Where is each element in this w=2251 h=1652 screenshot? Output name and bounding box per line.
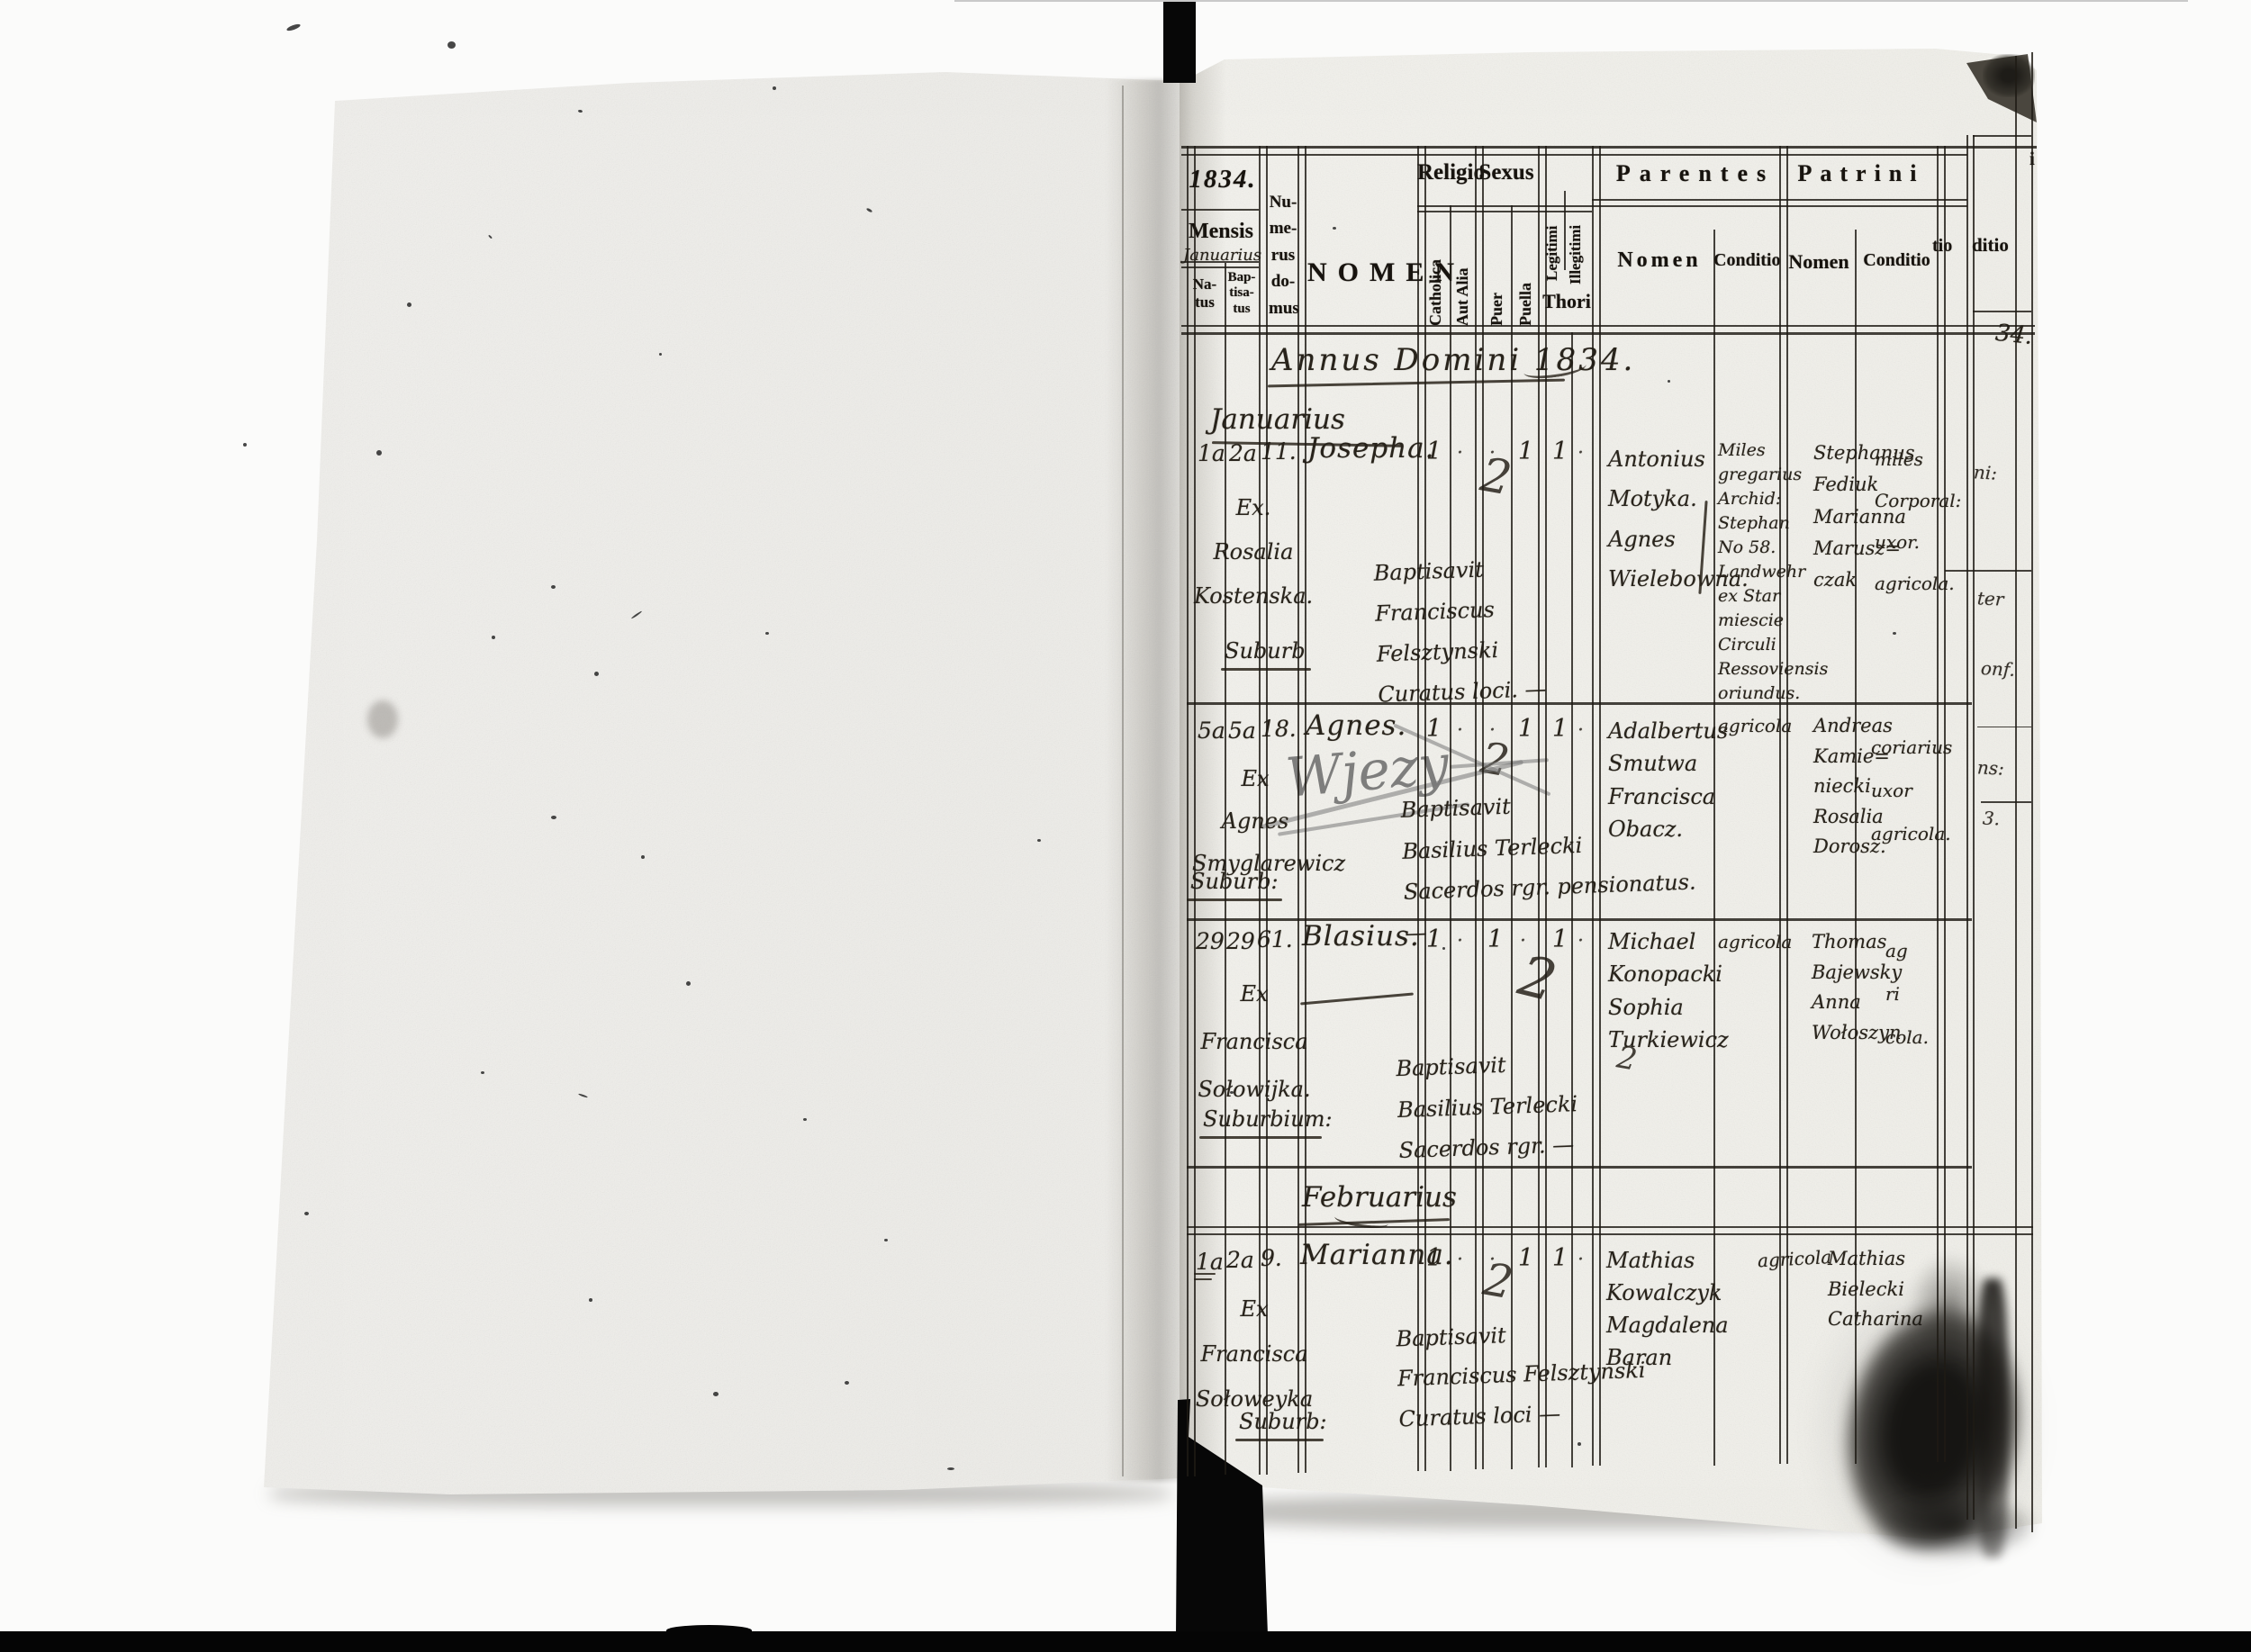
paper-speck xyxy=(447,41,456,49)
table-rule-horizontal xyxy=(1181,266,1259,268)
paper-speck xyxy=(1893,632,1896,635)
scan-bottom-bump xyxy=(666,1625,752,1636)
table-rule-vertical xyxy=(1779,146,1781,1464)
paper-speck xyxy=(492,636,495,639)
paper-speck xyxy=(884,1239,888,1241)
table-rule-horizontal xyxy=(1187,1166,1972,1169)
table-rule-horizontal xyxy=(1977,727,2031,727)
table-rule-vertical xyxy=(1259,146,1261,1475)
paper-speck xyxy=(1442,947,1445,950)
table-rule-horizontal xyxy=(1181,332,2035,335)
table-rule-vertical xyxy=(1973,135,1975,1520)
table-rule-horizontal xyxy=(1417,211,1592,212)
paper-speck xyxy=(947,1467,954,1470)
table-rule-horizontal xyxy=(1187,702,1972,705)
table-rule-vertical xyxy=(1297,146,1299,1473)
table-rule-vertical xyxy=(1599,146,1601,1466)
table-rule-horizontal xyxy=(1181,261,1259,263)
paper-speck xyxy=(1578,1442,1581,1446)
table-rule-vertical xyxy=(1855,230,1857,1464)
paper-speck xyxy=(713,1392,719,1396)
paper-speck xyxy=(1037,839,1041,842)
table-rule-vertical xyxy=(1305,146,1306,1473)
table-rule-horizontal xyxy=(1187,1226,2033,1228)
paper-speck xyxy=(773,86,776,90)
paper-speck xyxy=(1668,380,1670,383)
paper-speck xyxy=(1333,227,1336,230)
paper-speck xyxy=(589,1298,592,1302)
table-rule-vertical xyxy=(1194,146,1196,1476)
table-rule-horizontal xyxy=(1181,325,2035,327)
table-rule-vertical xyxy=(1266,146,1268,1475)
paper-speck xyxy=(376,450,382,456)
table-rule-horizontal xyxy=(1181,154,1967,156)
table-rule-vertical xyxy=(1475,146,1477,1469)
table-rule-vertical xyxy=(1937,146,1939,1462)
table-rule-vertical xyxy=(1571,332,1573,1467)
scan-top-line xyxy=(954,0,2188,2)
table-rule-vertical xyxy=(1966,135,1968,1520)
paper-speck xyxy=(1230,1091,1234,1094)
table-rule-vertical xyxy=(1225,263,1226,1475)
paper-speck xyxy=(765,632,769,635)
paper-speck xyxy=(551,585,556,589)
paper-speck xyxy=(243,443,247,447)
table-rule-horizontal xyxy=(1181,209,1259,211)
table-rule-vertical xyxy=(1564,191,1566,270)
table-rule-vertical xyxy=(1450,205,1451,1471)
paper-speck xyxy=(407,302,411,307)
table-rule-horizontal xyxy=(1973,135,2031,137)
paper-speck xyxy=(594,672,599,676)
table-rule-horizontal xyxy=(1592,199,1967,201)
table-rule-vertical xyxy=(2015,56,2017,1529)
table-rule-vertical xyxy=(1424,146,1426,1471)
table-rule-horizontal xyxy=(1973,311,2031,312)
binding-wedge xyxy=(0,0,2251,1652)
table-rule-horizontal xyxy=(1187,1233,2033,1235)
table-rule-vertical xyxy=(1545,146,1547,1467)
paper-speck xyxy=(845,1381,849,1385)
paper-speck xyxy=(481,1071,484,1074)
table-rule-vertical xyxy=(1511,205,1513,1469)
table-rule-vertical xyxy=(1944,146,1946,1462)
table-rule-vertical xyxy=(1482,146,1484,1469)
table-rule-vertical xyxy=(1713,230,1715,1466)
paper-speck xyxy=(803,1118,807,1121)
table-rule-vertical xyxy=(1417,146,1419,1471)
table-rule-horizontal xyxy=(1417,205,1592,207)
scan-bottom-bar xyxy=(0,1631,2251,1652)
table-rule-horizontal xyxy=(1181,146,2037,149)
table-rule-vertical xyxy=(1592,146,1594,1466)
table-rule-vertical xyxy=(1187,146,1189,1476)
scanned-register-spread: 1834. Mensis Januarius Na- tus Bap- tisa… xyxy=(0,0,2251,1652)
table-rule-vertical xyxy=(1786,146,1788,1464)
paper-speck xyxy=(304,1212,309,1215)
binding-strip-bottom xyxy=(0,0,2251,1652)
table-rule-horizontal xyxy=(1592,205,1967,207)
paper-speck xyxy=(686,981,691,986)
table-rule-horizontal xyxy=(1945,570,2031,572)
table-rule-vertical xyxy=(2031,52,2033,1532)
table-rule-vertical xyxy=(1538,146,1540,1467)
paper-speck xyxy=(659,353,662,356)
table-rule-horizontal xyxy=(1981,801,2031,803)
paper-speck xyxy=(578,110,583,113)
paper-speck xyxy=(551,816,556,819)
table-rule-horizontal xyxy=(1187,918,1972,921)
paper-speck xyxy=(641,855,645,859)
